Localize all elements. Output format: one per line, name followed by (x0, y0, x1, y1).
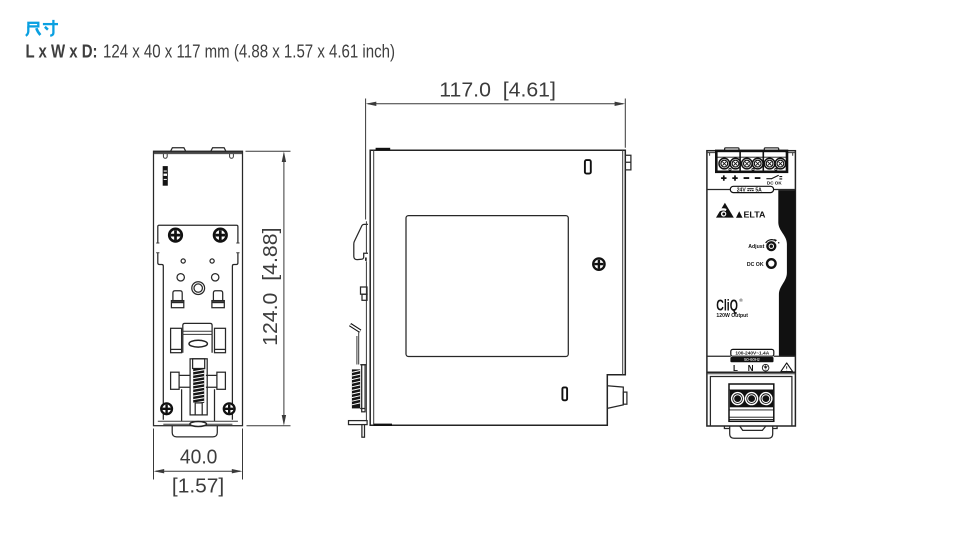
svg-text:DC OK: DC OK (767, 180, 782, 185)
svg-text:Adjust: Adjust (748, 244, 764, 250)
svg-text:DC OK: DC OK (747, 262, 764, 268)
svg-text:L x W x D:: L x W x D: (26, 41, 98, 61)
svg-text:117.0 [4.61]: 117.0 [4.61] (439, 80, 556, 102)
svg-text:124 x 40 x 117 mm (4.88 x 1.57: 124 x 40 x 117 mm (4.88 x 1.57 x 4.61 in… (103, 41, 395, 61)
svg-text:120W Output: 120W Output (716, 313, 748, 319)
svg-text:[1.57]: [1.57] (172, 476, 224, 498)
svg-text:50-60Hz: 50-60Hz (744, 357, 760, 362)
svg-text:®: ® (739, 297, 743, 304)
svg-text:40.0: 40.0 (180, 446, 218, 468)
svg-text:124.0 [4.88]: 124.0 [4.88] (260, 227, 282, 345)
svg-text:24V: 24V (737, 187, 747, 193)
svg-text:CliQ: CliQ (716, 297, 738, 314)
svg-text:5A: 5A (755, 187, 762, 193)
svg-text:ELTA: ELTA (744, 210, 766, 220)
svg-text:100-240V~1.4A: 100-240V~1.4A (735, 351, 769, 357)
